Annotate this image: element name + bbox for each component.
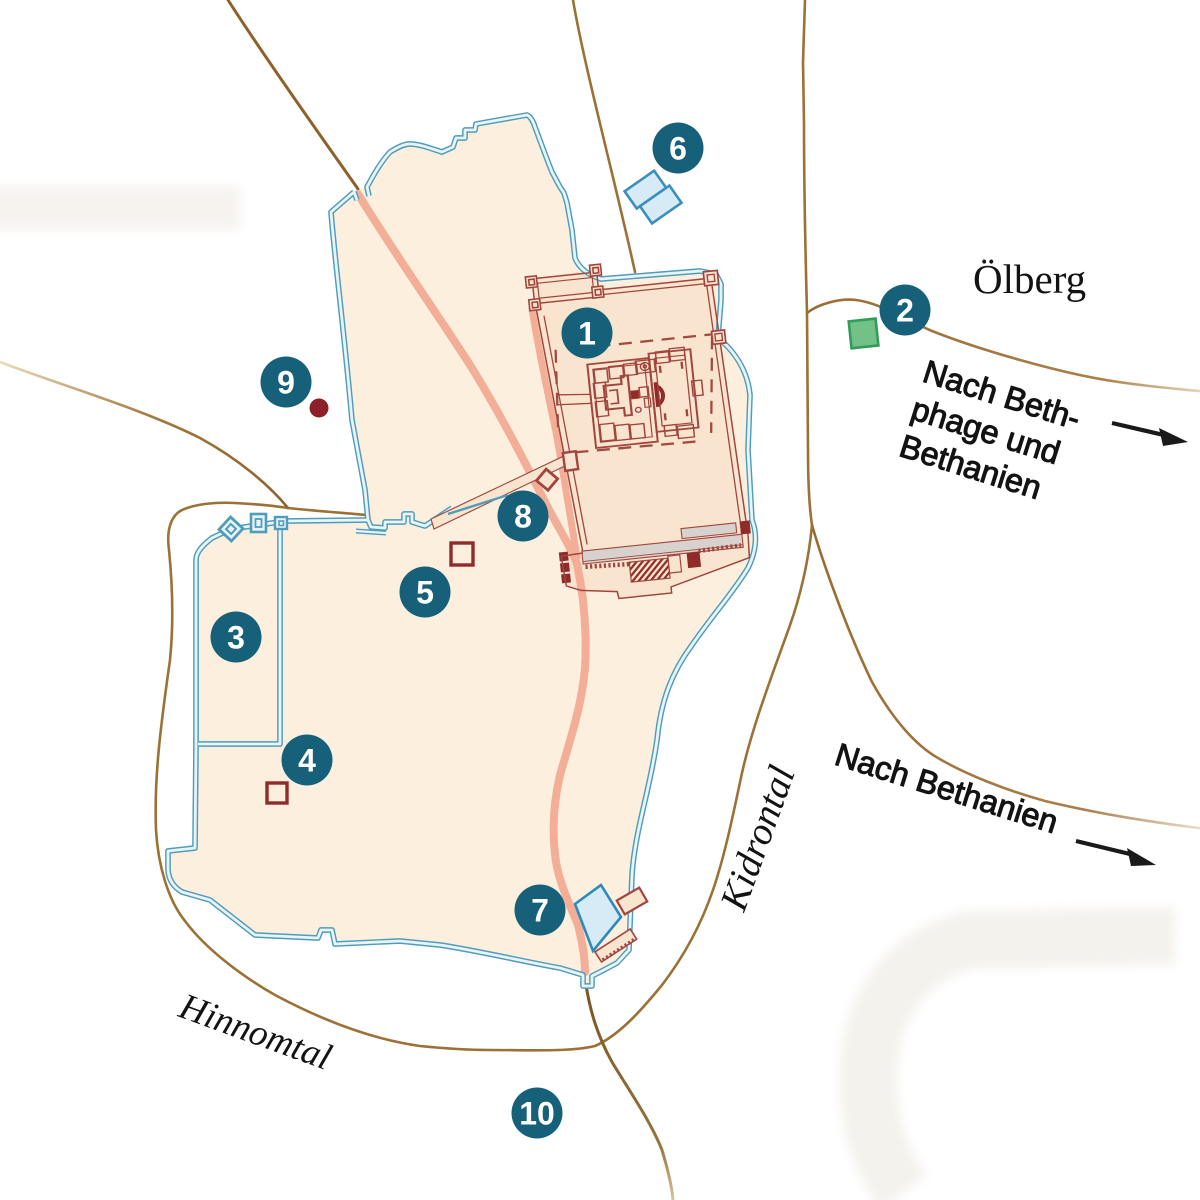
svg-text:2: 2: [896, 293, 914, 329]
svg-text:9: 9: [277, 365, 295, 401]
svg-text:7: 7: [531, 893, 549, 929]
svg-text:6: 6: [669, 131, 687, 167]
svg-text:5: 5: [416, 575, 434, 611]
svg-text:1: 1: [578, 316, 596, 352]
svg-text:10: 10: [519, 1096, 555, 1132]
svg-text:4: 4: [298, 743, 316, 779]
svg-text:Ölberg: Ölberg: [973, 256, 1086, 302]
svg-text:8: 8: [514, 499, 532, 535]
svg-text:3: 3: [227, 620, 245, 656]
